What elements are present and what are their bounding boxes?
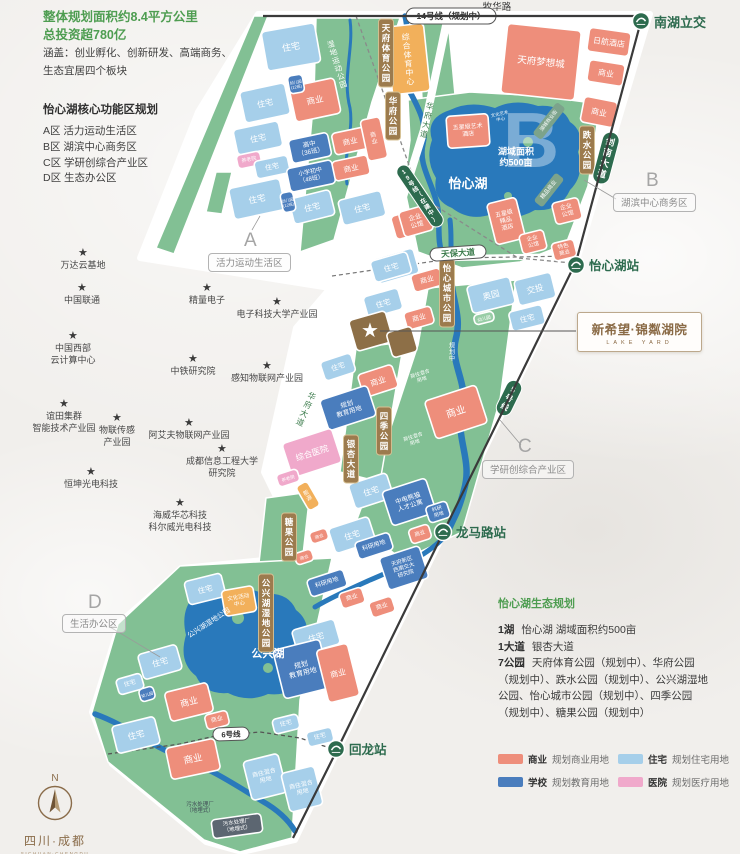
park-tag-label: 四季公园: [379, 411, 389, 451]
eco-item-key: 1大道: [498, 641, 525, 653]
station-label-nanhu: 南湖立交: [654, 15, 706, 30]
legend-label: 住宅: [648, 752, 667, 766]
park-tag-label: 糖果公园: [284, 517, 294, 557]
landmark-star-icon: ★: [170, 354, 215, 364]
landmark-item: ★阿艾夫物联网产业园: [148, 418, 229, 442]
legend-swatch-hospital: [618, 777, 643, 787]
station-marker-huilong: [328, 741, 345, 758]
legend-swatch-residential: [618, 754, 643, 764]
landmark-star-icon: ★: [148, 498, 211, 508]
park-tag-label: 华府公园: [389, 96, 398, 136]
compass-rose: N: [14, 772, 96, 824]
landmark-name: 感知物联网产业园: [231, 373, 303, 383]
project-logo-title: 新希望·锦粼湖院: [578, 319, 701, 338]
landmark-name: 万达云基地: [60, 260, 105, 270]
landmark-item: ★谊田集群 智能技术产业园: [32, 399, 95, 434]
landmark-star-icon: ★: [99, 413, 135, 423]
park-tag-label: 怡心城市公园: [443, 263, 452, 323]
project-logo-subtitle: LAKE YARD: [578, 340, 701, 346]
landmark-item: ★物联传感 产业园: [99, 413, 135, 448]
investment-line: 总投资超780亿: [43, 26, 343, 44]
station-label-longmalu: 龙马路站: [455, 525, 507, 540]
zone-d-letter: D: [88, 592, 103, 614]
landmark-star-icon: ★: [186, 444, 258, 454]
compass-region: 四川·成都: [14, 832, 96, 849]
landmark-item: ★海威华芯科技 科尔威光电科技: [148, 498, 211, 533]
station-marker-longmalu: [435, 524, 452, 541]
landmark-name: 中国联通: [64, 295, 100, 305]
eco-item-value: 怡心湖 湖域面积约500亩: [521, 624, 636, 636]
legend-swatch-commercial: [498, 754, 523, 764]
eco-panel: 怡心湖生态规划 1湖怡心湖 湖域面积约500亩 1大道银杏大道 7公园天府体育公…: [498, 595, 712, 721]
landmark-name: 成都信息工程大学 研究院: [186, 456, 258, 478]
park-tag-label: 公兴湖湿地公园: [262, 578, 271, 648]
landmark-name: 中国西部 云计算中心: [50, 343, 95, 365]
eco-item-value: 银杏大道: [532, 641, 574, 653]
landmark-star-icon: ★: [64, 467, 118, 477]
legend-label: 学校: [528, 775, 547, 789]
yixin-lake-label: 怡心湖: [448, 176, 487, 191]
zone-a-letter: A: [244, 230, 258, 252]
legend-item-hospital: 医院规划医疗用地: [618, 775, 733, 789]
zone-b-callout: 湖滨中心商务区: [613, 193, 696, 212]
legend-desc: 规划医疗用地: [672, 775, 729, 789]
landmark-item: ★成都信息工程大学 研究院: [186, 444, 258, 479]
sewage-plant-text: 污水处理厂（地埋式）: [186, 800, 214, 814]
landmark-item: ★精量电子: [189, 283, 225, 307]
park-tag-label: 银杏大道: [346, 439, 356, 479]
landmark-star-icon: ★: [148, 418, 229, 428]
compass-needle-light: [55, 789, 61, 813]
eco-item-avenue: 1大道银杏大道: [498, 639, 712, 656]
landmark-name: 中铁研究院: [170, 366, 215, 376]
landmark-star-icon: ★: [50, 331, 95, 341]
landmark-name: 海威华芯科技 科尔威光电科技: [148, 510, 211, 532]
core-zones-heading: 怡心湖核心功能区规划: [43, 101, 343, 117]
coverage-line-1: 涵盖：创业孵化、创新研发、高端商务、: [43, 44, 343, 62]
legend-swatch-school: [498, 777, 523, 787]
legend-desc: 规划商业用地: [552, 752, 609, 766]
landmark-star-icon: ★: [64, 283, 100, 293]
planning-map-page: B住宅住宅住宅养老院住宅住宅住宅住宅住宅商业商业商业商业高中（36班）小学初中（…: [0, 0, 740, 854]
landmark-item: ★电子科技大学产业园: [236, 297, 317, 321]
zone-b-watermark: B: [503, 96, 559, 184]
landmark-name: 电子科技大学产业园: [236, 309, 317, 319]
park-tag-label: 跌水公园: [582, 130, 592, 170]
zone-a-item: A区 活力运动生活区: [43, 124, 343, 140]
coverage-line-2: 生态宜居四个板块: [43, 62, 343, 80]
eco-item-value: 天府体育公园（规划中）、华府公园（规划中）、跌水公园（规划中）、公兴湖湿地公园、…: [498, 657, 708, 719]
station-label-huilong: 回龙站: [349, 742, 387, 757]
park-tag-label: 天府体育公园: [382, 23, 391, 83]
planning-river-label: 规划中: [449, 341, 455, 362]
station-label-yixinhu: 怡心湖站: [589, 258, 640, 273]
landmark-name: 谊田集群 智能技术产业园: [32, 411, 95, 433]
landmark-star-icon: ★: [60, 248, 105, 258]
landmark-star-icon: ★: [189, 283, 225, 293]
landmark-name: 物联传感 产业园: [99, 425, 135, 447]
landmark-name: 阿艾夫物联网产业园: [148, 430, 229, 440]
zone-b-item: B区 湖滨中心商务区: [43, 140, 343, 156]
legend-item-school: 学校规划教育用地: [498, 775, 618, 789]
eco-item-lake: 1湖怡心湖 湖域面积约500亩: [498, 622, 712, 639]
lake-area-label: 湖域面积约500亩: [498, 146, 534, 168]
zone-d-item: D区 生态办公区: [43, 171, 343, 187]
landmark-star-icon: ★: [236, 297, 317, 307]
station-marker-nanhu: [633, 13, 650, 30]
legend-label: 商业: [528, 752, 547, 766]
plan-area-line: 整体规划面积约8.4平方公里: [43, 8, 343, 26]
landmark-item: ★感知物联网产业园: [231, 361, 303, 385]
landmark-name: 恒坤光电科技: [64, 479, 118, 489]
eco-item-key: 7公园: [498, 657, 525, 669]
landmark-star-icon: ★: [32, 399, 95, 409]
eco-item-parks: 7公园天府体育公园（规划中）、华府公园（规划中）、跌水公园（规划中）、公兴湖湿地…: [498, 655, 712, 721]
zone-c-item: C区 学研创综合产业区: [43, 156, 343, 172]
project-logo: 新希望·锦粼湖院 LAKE YARD: [577, 312, 702, 352]
creative-park-label: 创意公园: [308, 516, 332, 524]
eco-panel-title: 怡心湖生态规划: [498, 595, 712, 611]
compass-n-label: N: [51, 773, 58, 784]
landmark-item: ★中国联通: [64, 283, 100, 307]
landmark-name: 精量电子: [189, 295, 225, 305]
project-site-star: ★: [361, 320, 379, 342]
zone-d-callout: 生活办公区: [62, 614, 126, 633]
eco-item-key: 1湖: [498, 624, 514, 636]
legend-item-commercial: 商业规划商业用地: [498, 752, 618, 766]
landmark-item: ★中铁研究院: [170, 354, 215, 378]
lake-island: [263, 663, 273, 673]
legend-desc: 规划教育用地: [552, 775, 609, 789]
landmark-item: ★万达云基地: [60, 248, 105, 272]
legend: 商业规划商业用地 住宅规划住宅用地 学校规划教育用地 医院规划医疗用地: [498, 752, 733, 789]
landmark-item: ★中国西部 云计算中心: [50, 331, 95, 366]
legend-desc: 规划住宅用地: [672, 752, 729, 766]
legend-item-residential: 住宅规划住宅用地: [618, 752, 733, 766]
landmark-star-icon: ★: [231, 361, 303, 371]
road-pill-label: 6号线: [221, 728, 241, 739]
landmark-item: ★恒坤光电科技: [64, 467, 118, 491]
info-panel: 整体规划面积约8.4平方公里 总投资超780亿 涵盖：创业孵化、创新研发、高端商…: [43, 8, 343, 187]
zone-c-letter: C: [518, 436, 533, 458]
legend-label: 医院: [648, 775, 667, 789]
zone-c-callout: 学研创综合产业区: [482, 460, 574, 479]
zone-b-letter: B: [646, 170, 660, 192]
zone-a-callout: 活力运动生活区: [208, 253, 291, 272]
compass-needle-dark: [50, 789, 56, 813]
station-marker-yixinhu: [568, 257, 585, 274]
compass: N 四川·成都 SICHUAN·CHENGDU: [14, 772, 96, 854]
